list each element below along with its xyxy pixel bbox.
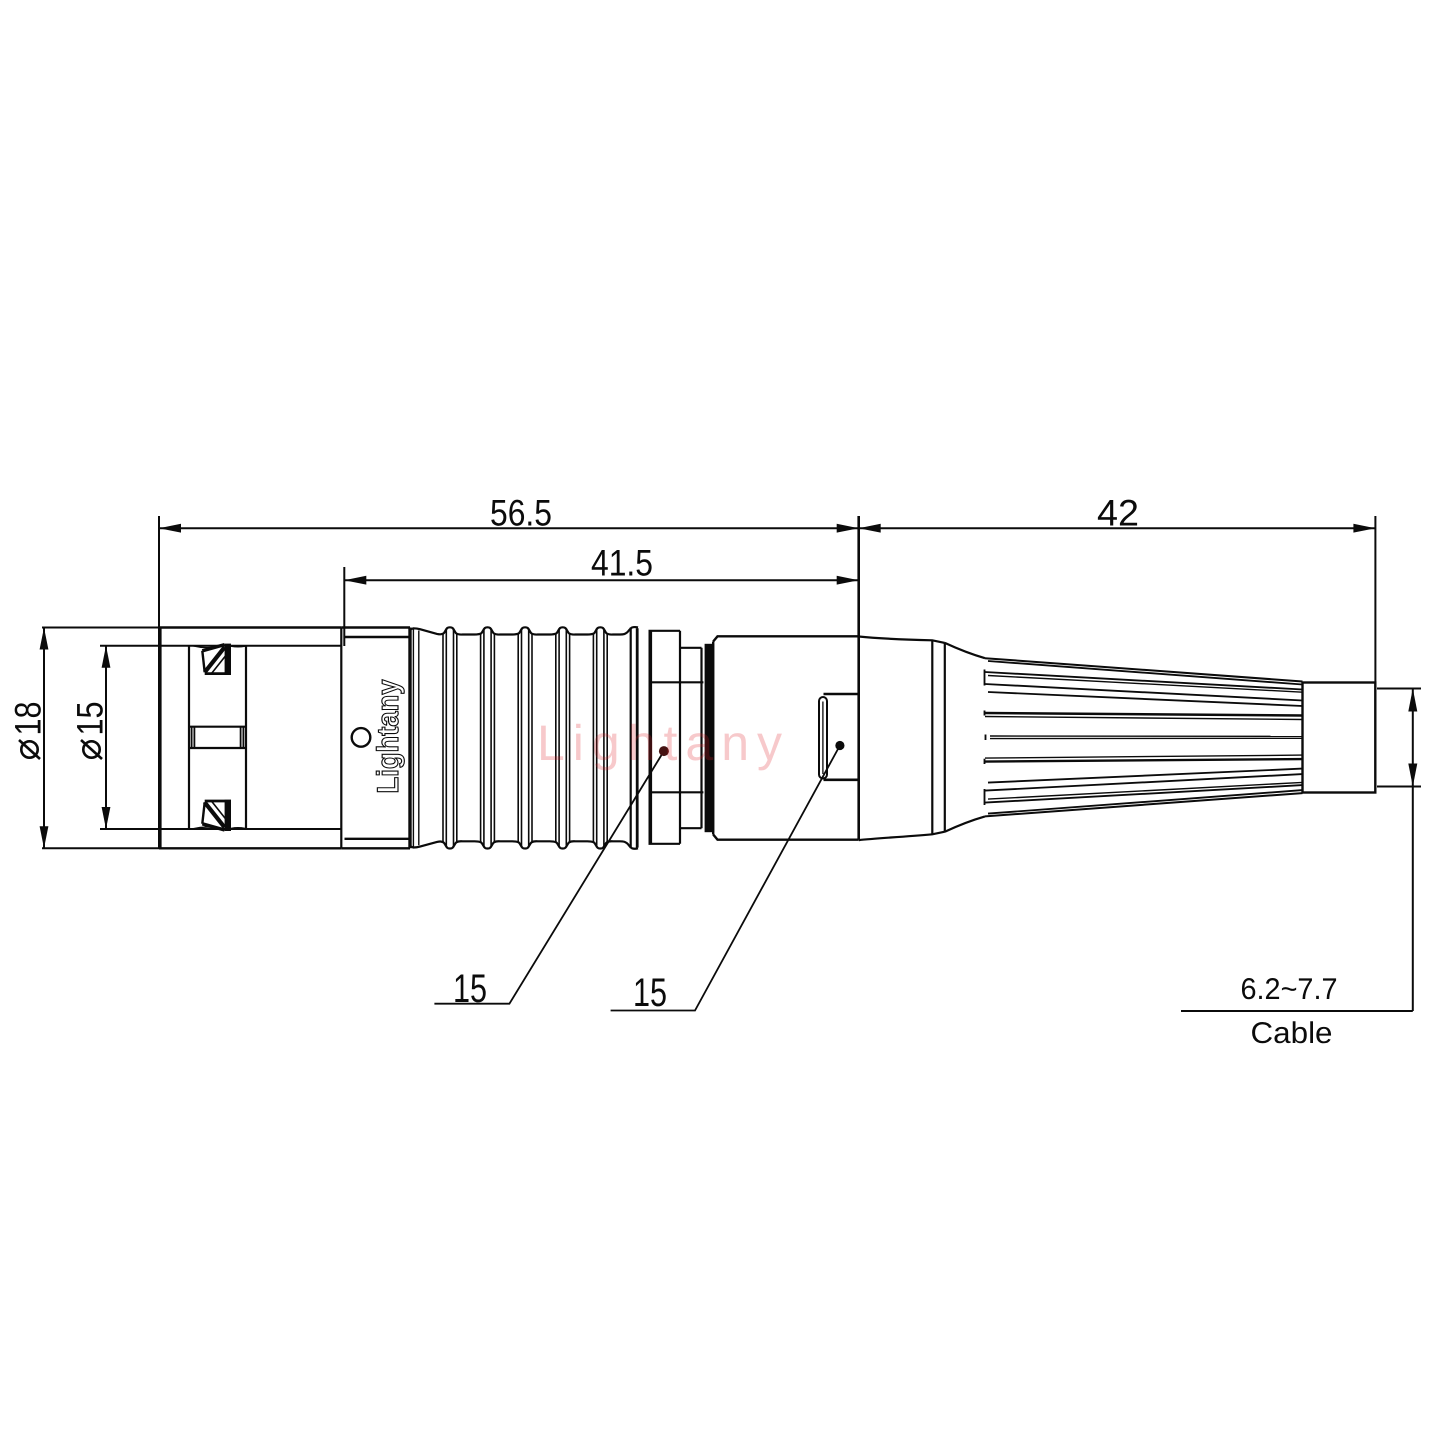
svg-text:15: 15 xyxy=(453,967,487,1011)
svg-text:41.5: 41.5 xyxy=(591,542,653,583)
svg-text:15: 15 xyxy=(633,971,667,1015)
svg-text:6.2~7.7: 6.2~7.7 xyxy=(1241,973,1338,1006)
svg-text:56.5: 56.5 xyxy=(490,493,552,534)
svg-text:Lightany: Lightany xyxy=(372,679,405,793)
svg-text:Lightany: Lightany xyxy=(537,715,790,771)
svg-text:18: 18 xyxy=(8,702,49,736)
svg-text:42: 42 xyxy=(1097,493,1139,534)
svg-text:Cable: Cable xyxy=(1251,1017,1333,1050)
svg-text:15: 15 xyxy=(70,702,111,736)
